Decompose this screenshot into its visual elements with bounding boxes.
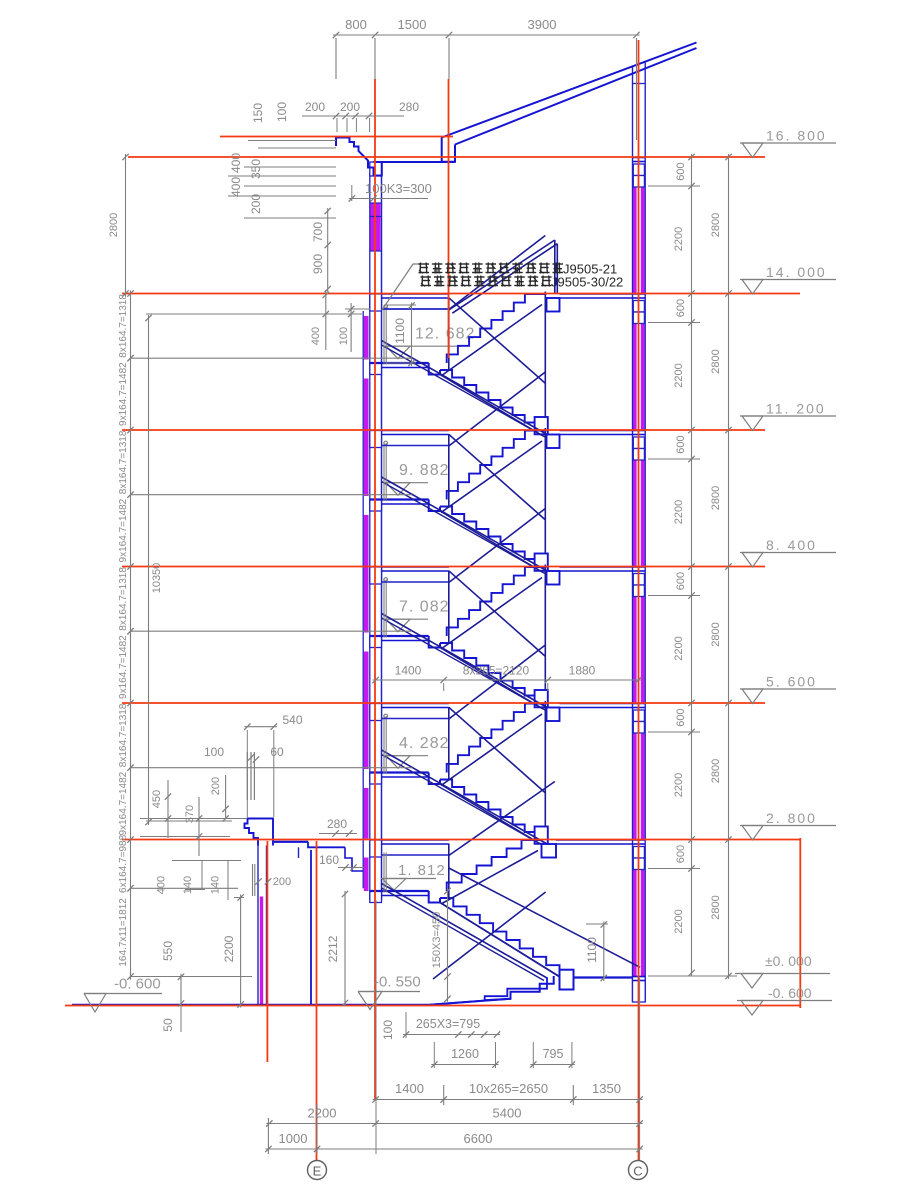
svg-text:540: 540 bbox=[282, 713, 302, 727]
svg-text:6x164.7=988: 6x164.7=988 bbox=[118, 834, 129, 893]
svg-text:200: 200 bbox=[210, 777, 222, 795]
svg-text:550: 550 bbox=[161, 941, 175, 961]
svg-text:1400: 1400 bbox=[395, 664, 422, 678]
svg-text:2200: 2200 bbox=[673, 500, 685, 524]
svg-text:370: 370 bbox=[184, 805, 196, 823]
svg-text:2200: 2200 bbox=[673, 227, 685, 251]
svg-text:9x164.7=1482: 9x164.7=1482 bbox=[118, 362, 129, 426]
svg-text:100: 100 bbox=[381, 1020, 395, 1040]
svg-text:9x164.7=1482: 9x164.7=1482 bbox=[118, 771, 129, 835]
svg-text:-0. 600: -0. 600 bbox=[114, 976, 161, 993]
svg-text:8x164.7=1318: 8x164.7=1318 bbox=[118, 703, 129, 767]
svg-text:16. 800: 16. 800 bbox=[766, 128, 827, 144]
svg-text:2800: 2800 bbox=[710, 486, 722, 510]
svg-text:8x265=2120: 8x265=2120 bbox=[463, 664, 530, 678]
svg-text:265X3=795: 265X3=795 bbox=[416, 1017, 480, 1031]
svg-text:400: 400 bbox=[229, 177, 243, 197]
svg-text:-0. 600: -0. 600 bbox=[768, 985, 812, 1001]
svg-text:200: 200 bbox=[273, 876, 291, 888]
svg-text:9x164.7=1482: 9x164.7=1482 bbox=[118, 635, 129, 699]
svg-text:800: 800 bbox=[345, 17, 367, 32]
svg-text:150X3=450: 150X3=450 bbox=[431, 912, 443, 969]
svg-text:2800: 2800 bbox=[710, 213, 722, 237]
svg-text:6600: 6600 bbox=[464, 1131, 493, 1146]
svg-text:8. 400: 8. 400 bbox=[766, 537, 817, 553]
svg-text:±0. 000: ±0. 000 bbox=[765, 953, 812, 969]
svg-text:795: 795 bbox=[543, 1047, 564, 1061]
svg-text:5. 600: 5. 600 bbox=[766, 674, 817, 690]
svg-text:150: 150 bbox=[251, 103, 265, 123]
svg-text:1350: 1350 bbox=[592, 1081, 621, 1096]
svg-text:2200: 2200 bbox=[673, 636, 685, 660]
svg-text:1880: 1880 bbox=[569, 664, 596, 678]
svg-text:2800: 2800 bbox=[710, 895, 722, 919]
svg-text:2200: 2200 bbox=[308, 1106, 337, 1121]
svg-text:700: 700 bbox=[311, 222, 325, 242]
svg-text:600: 600 bbox=[675, 435, 687, 453]
svg-text:200: 200 bbox=[340, 100, 360, 114]
svg-text:2200: 2200 bbox=[673, 363, 685, 387]
svg-text:140: 140 bbox=[182, 876, 194, 894]
svg-text:2200: 2200 bbox=[673, 909, 685, 933]
svg-text:8x164.7=1318: 8x164.7=1318 bbox=[118, 430, 129, 494]
svg-text:11. 200: 11. 200 bbox=[766, 401, 826, 417]
svg-text:100: 100 bbox=[338, 327, 350, 345]
svg-text:200: 200 bbox=[305, 100, 325, 114]
svg-text:100: 100 bbox=[204, 745, 224, 759]
svg-text:2800: 2800 bbox=[710, 349, 722, 373]
svg-text:1000: 1000 bbox=[279, 1131, 308, 1146]
svg-text:600: 600 bbox=[675, 708, 687, 726]
svg-text:140: 140 bbox=[210, 876, 222, 894]
svg-text:400: 400 bbox=[229, 153, 243, 173]
svg-text:-0. 550: -0. 550 bbox=[374, 974, 421, 991]
svg-text:160: 160 bbox=[319, 853, 339, 867]
svg-text:900: 900 bbox=[311, 254, 325, 274]
svg-text:600: 600 bbox=[675, 845, 687, 863]
svg-text:1500: 1500 bbox=[398, 17, 427, 32]
svg-text:1100: 1100 bbox=[585, 937, 599, 963]
svg-text:450: 450 bbox=[151, 790, 163, 808]
svg-text:1260: 1260 bbox=[451, 1047, 479, 1061]
svg-text:14. 000: 14. 000 bbox=[766, 264, 827, 280]
svg-text:2200: 2200 bbox=[673, 773, 685, 797]
svg-text:1100: 1100 bbox=[393, 318, 407, 344]
svg-text:C: C bbox=[633, 1164, 642, 1179]
svg-text:600: 600 bbox=[675, 572, 687, 590]
svg-text:8x164.7=1318: 8x164.7=1318 bbox=[118, 567, 129, 631]
svg-text:164.7x11=1812: 164.7x11=1812 bbox=[118, 898, 129, 967]
svg-text:E: E bbox=[313, 1164, 322, 1179]
svg-text:2800: 2800 bbox=[710, 622, 722, 646]
svg-text:1400: 1400 bbox=[395, 1081, 424, 1096]
svg-text:2800: 2800 bbox=[108, 213, 120, 237]
svg-text:5400: 5400 bbox=[493, 1106, 522, 1121]
svg-text:12. 682: 12. 682 bbox=[415, 326, 475, 343]
svg-text:9. 882: 9. 882 bbox=[399, 462, 449, 479]
svg-text:3900: 3900 bbox=[528, 17, 557, 32]
svg-text:10x265=2650: 10x265=2650 bbox=[469, 1081, 548, 1096]
svg-text:4. 282: 4. 282 bbox=[399, 735, 449, 752]
svg-text:600: 600 bbox=[675, 162, 687, 180]
svg-text:2212: 2212 bbox=[326, 935, 340, 962]
svg-text:1. 812: 1. 812 bbox=[398, 862, 446, 879]
svg-text:9x164.7=1482: 9x164.7=1482 bbox=[118, 498, 129, 562]
svg-text:10350: 10350 bbox=[151, 563, 163, 594]
svg-text:600: 600 bbox=[675, 299, 687, 317]
svg-text:8x164.7=1318: 8x164.7=1318 bbox=[118, 294, 129, 358]
svg-text:60: 60 bbox=[270, 745, 284, 759]
svg-text:J9505-30/22: J9505-30/22 bbox=[551, 275, 623, 290]
svg-text:50: 50 bbox=[161, 1018, 175, 1032]
svg-text:7. 082: 7. 082 bbox=[399, 599, 449, 616]
svg-text:2800: 2800 bbox=[710, 759, 722, 783]
svg-text:200: 200 bbox=[249, 194, 263, 214]
svg-text:400: 400 bbox=[310, 327, 322, 345]
svg-text:100: 100 bbox=[275, 102, 289, 122]
svg-text:400: 400 bbox=[156, 876, 168, 894]
svg-text:2. 800: 2. 800 bbox=[766, 810, 817, 826]
svg-text:280: 280 bbox=[327, 817, 347, 831]
svg-text:2200: 2200 bbox=[222, 935, 236, 962]
svg-text:280: 280 bbox=[399, 100, 419, 114]
svg-text:100K3=300: 100K3=300 bbox=[365, 181, 432, 196]
